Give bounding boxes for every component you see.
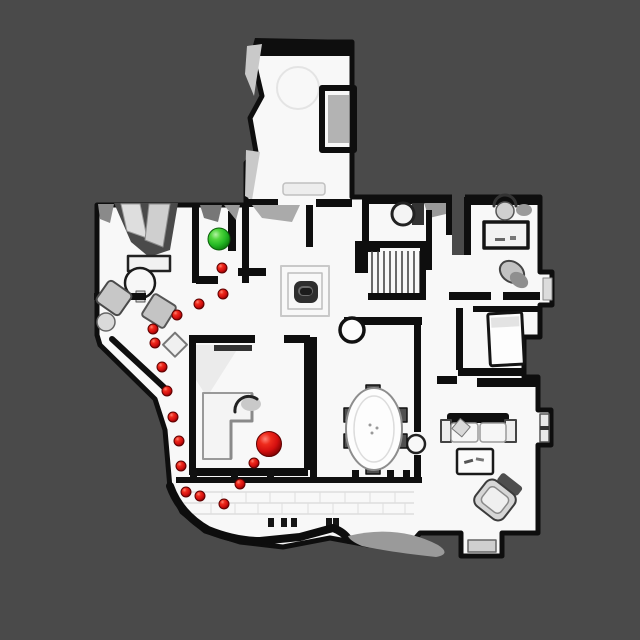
stairs-rail — [420, 248, 426, 300]
stairs-south-wall — [368, 293, 424, 300]
waypoint-marker-15[interactable] — [235, 479, 245, 489]
deck-rail-posts — [310, 470, 317, 482]
waypoint-marker-3[interactable] — [194, 299, 204, 309]
bath-east-wall — [446, 197, 453, 235]
deck-rail-posts — [387, 470, 394, 482]
green-room-west-wall — [192, 205, 199, 283]
floorplan-canvas — [0, 0, 640, 640]
kitchen-north-wall-a — [193, 335, 255, 343]
bay-nook-bench — [468, 540, 496, 552]
kitchen-north-wall-b — [284, 335, 310, 343]
office-south-wall-b — [503, 292, 540, 300]
deck-rail-posts — [352, 470, 359, 482]
bedroom-west-wall — [456, 308, 463, 370]
deck-rail-posts — [267, 470, 274, 482]
waypoint-marker-4[interactable] — [172, 310, 182, 320]
kitchen-south-wall — [193, 468, 308, 476]
toilet-bowl — [392, 203, 414, 225]
goal-marker[interactable] — [257, 432, 282, 457]
tower-closet-object — [328, 95, 349, 143]
waypoint-marker-1[interactable] — [217, 263, 227, 273]
coffee-table — [457, 449, 493, 474]
living-north-wall-b — [477, 378, 537, 387]
office-blob — [516, 204, 532, 216]
scan-viewer[interactable] — [0, 0, 640, 640]
sofa-arm-left — [441, 420, 451, 442]
door-column — [407, 435, 425, 453]
sofa-seat-right — [480, 423, 506, 442]
waypoint-marker-12[interactable] — [181, 487, 191, 497]
hall-wall-stub — [238, 268, 266, 276]
waypoint-marker-9[interactable] — [168, 412, 178, 422]
waypoint-marker-13[interactable] — [195, 491, 205, 501]
kitchen-west-wall — [189, 335, 196, 475]
scan-gap-overlay — [452, 193, 465, 255]
bedroom-north-wall — [473, 306, 540, 312]
hall-east-wall — [426, 210, 432, 270]
deck-railing — [176, 477, 422, 483]
waypoint-marker-2[interactable] — [218, 289, 228, 299]
deck-rail-posts — [403, 470, 410, 482]
tower-bench — [283, 183, 325, 195]
dining-round-wall — [340, 318, 364, 342]
dining-table-dots — [371, 432, 374, 435]
deck-lower-posts — [268, 518, 274, 527]
waypoint-marker-11[interactable] — [176, 461, 186, 471]
deck-rail-posts — [190, 470, 197, 482]
tower-top-wall — [250, 38, 352, 56]
waypoint-marker-14[interactable] — [219, 499, 229, 509]
dining-east-wall-a — [414, 320, 421, 432]
desk-item-2 — [510, 236, 516, 240]
wing-side-table — [97, 313, 115, 331]
waypoint-marker-16[interactable] — [249, 458, 259, 468]
dining-west-wall — [304, 337, 317, 470]
waypoint-marker-5[interactable] — [148, 324, 158, 334]
room2-east-wall — [306, 205, 313, 247]
dining-east-wall-b — [414, 455, 421, 480]
start-marker[interactable] — [208, 228, 230, 250]
waypoint-marker-10[interactable] — [174, 436, 184, 446]
living-north-wall-a — [437, 376, 457, 384]
deck-lower-posts — [281, 518, 287, 527]
waypoint-marker-8[interactable] — [162, 386, 172, 396]
office-west-wall — [464, 197, 471, 255]
desk-item-1 — [495, 238, 505, 241]
bedroom-south-wall — [458, 368, 526, 376]
tower-south-wall-right — [316, 199, 352, 207]
sofa-back — [447, 413, 509, 423]
dining-table-dots — [376, 427, 379, 430]
deck-lower-posts — [291, 518, 297, 527]
ottoman-core — [300, 288, 312, 295]
office-south-wall-a — [449, 292, 491, 300]
office-desk — [484, 222, 528, 248]
waypoint-marker-6[interactable] — [150, 338, 160, 348]
waypoint-marker-7[interactable] — [157, 362, 167, 372]
fireplace-slot — [540, 426, 549, 430]
bed-pillow — [491, 316, 519, 327]
dining-table-dots — [369, 424, 372, 427]
green-room-south-stub — [196, 276, 218, 284]
east-nook-marks — [543, 278, 552, 300]
kitchen-dark-band — [214, 345, 252, 351]
office-chair — [496, 202, 514, 220]
